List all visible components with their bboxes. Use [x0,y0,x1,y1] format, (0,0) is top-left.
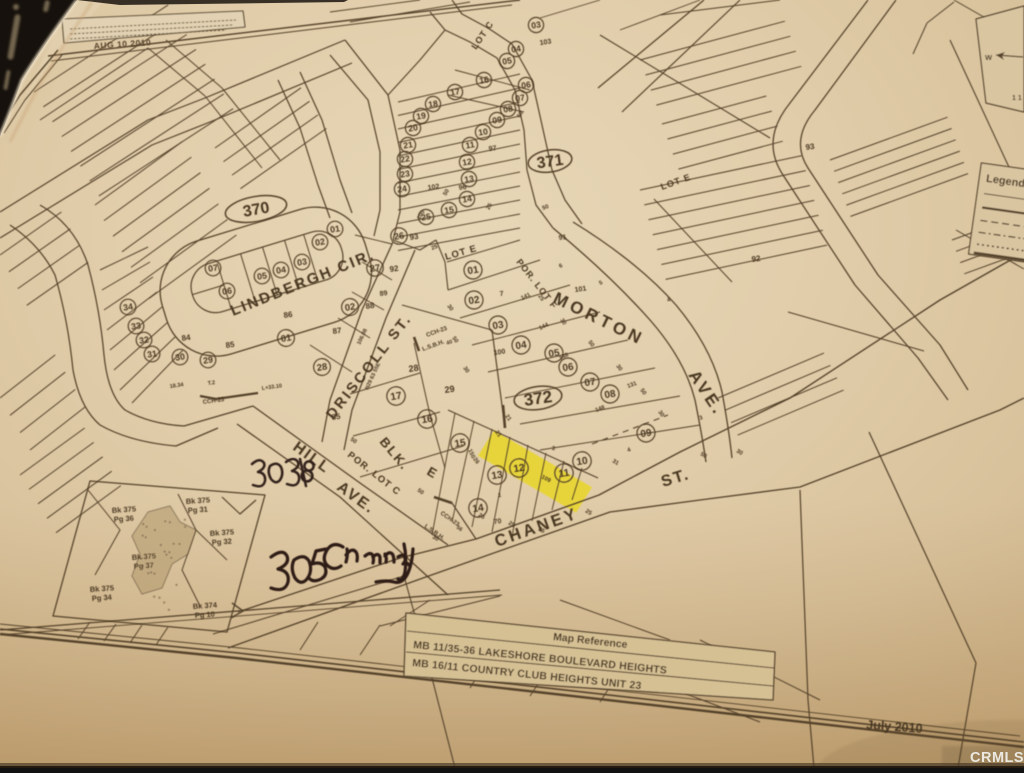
svg-text:Pg 37: Pg 37 [134,561,155,571]
svg-text:12: 12 [513,463,526,476]
svg-text:05: 05 [501,55,512,66]
svg-text:87: 87 [332,326,343,336]
svg-text:15: 15 [454,438,467,451]
svg-text:22: 22 [399,153,410,164]
svg-text:08: 08 [604,389,617,402]
svg-text:93: 93 [805,142,816,152]
svg-text:28: 28 [408,363,419,374]
svg-text:21: 21 [402,139,413,150]
svg-text:10: 10 [576,456,589,469]
svg-text:Pg 36: Pg 36 [114,514,135,524]
svg-text:Pg 31: Pg 31 [188,505,209,515]
svg-text:T.2: T.2 [207,380,215,387]
svg-text:23: 23 [399,168,410,179]
svg-text:13: 13 [463,173,474,184]
svg-text:97: 97 [488,145,497,153]
svg-text:14: 14 [461,193,472,204]
svg-text:01: 01 [280,331,292,343]
svg-text:06: 06 [520,79,531,90]
svg-text:32: 32 [138,334,149,345]
svg-text:16: 16 [421,414,434,427]
svg-text:05: 05 [256,270,267,281]
svg-text:11: 11 [558,468,571,481]
svg-text:16: 16 [478,74,489,85]
svg-text:96: 96 [458,184,467,192]
svg-text:91: 91 [558,234,567,242]
svg-text:85: 85 [225,340,236,350]
svg-text:07: 07 [207,262,218,273]
svg-text:CRMLS: CRMLS [970,750,1024,766]
svg-text:17: 17 [390,391,403,404]
svg-text:27: 27 [369,262,381,273]
svg-text:85: 85 [331,412,342,422]
svg-text:07: 07 [584,377,597,390]
svg-text:17: 17 [449,86,460,97]
svg-text:2: 2 [552,446,555,452]
svg-text:28: 28 [316,360,328,372]
svg-text:04: 04 [275,264,286,275]
svg-text:20: 20 [407,122,418,133]
svg-text:02: 02 [344,300,356,312]
svg-text:06: 06 [221,285,232,296]
svg-text:19: 19 [415,110,426,121]
svg-text:03: 03 [530,19,541,30]
svg-text:04: 04 [515,340,528,353]
svg-text:02: 02 [468,295,481,308]
svg-text:03: 03 [492,320,505,333]
svg-text:33: 33 [130,320,141,331]
svg-text:01: 01 [329,223,340,234]
svg-text:88: 88 [365,301,376,311]
svg-text:07: 07 [514,92,525,103]
svg-text:W: W [985,53,993,62]
svg-text:01: 01 [467,265,480,278]
svg-text:18: 18 [427,98,438,109]
svg-text:24: 24 [396,183,407,194]
svg-text:09: 09 [640,428,653,441]
svg-text:Pg 32: Pg 32 [212,537,233,547]
svg-text:13: 13 [491,470,504,483]
svg-text:09: 09 [491,114,502,125]
svg-text:29: 29 [202,354,213,365]
svg-text:93: 93 [409,232,420,242]
svg-text:31: 31 [146,348,157,359]
svg-text:03: 03 [296,256,307,267]
svg-text:04: 04 [510,43,521,54]
svg-text:86: 86 [283,310,294,320]
svg-text:34: 34 [122,301,133,312]
svg-text:92: 92 [389,264,400,274]
svg-text:70: 70 [493,518,502,526]
svg-text:Pg 10: Pg 10 [195,610,216,620]
svg-text:30: 30 [174,351,185,362]
svg-text:08: 08 [502,103,513,114]
svg-text:11: 11 [465,139,476,150]
svg-text:89: 89 [379,290,388,298]
svg-text:26: 26 [393,230,405,241]
svg-text:1 1: 1 1 [1012,95,1022,102]
svg-text:06: 06 [562,362,575,375]
svg-text:84: 84 [181,333,192,343]
svg-text:15: 15 [443,204,454,215]
svg-text:12: 12 [461,156,472,167]
svg-text:Pg 34: Pg 34 [92,593,113,603]
svg-text:372: 372 [523,387,554,410]
svg-text:29: 29 [444,384,455,395]
svg-text:92: 92 [751,254,762,264]
svg-text:10: 10 [477,126,488,137]
svg-text:02: 02 [314,236,325,247]
